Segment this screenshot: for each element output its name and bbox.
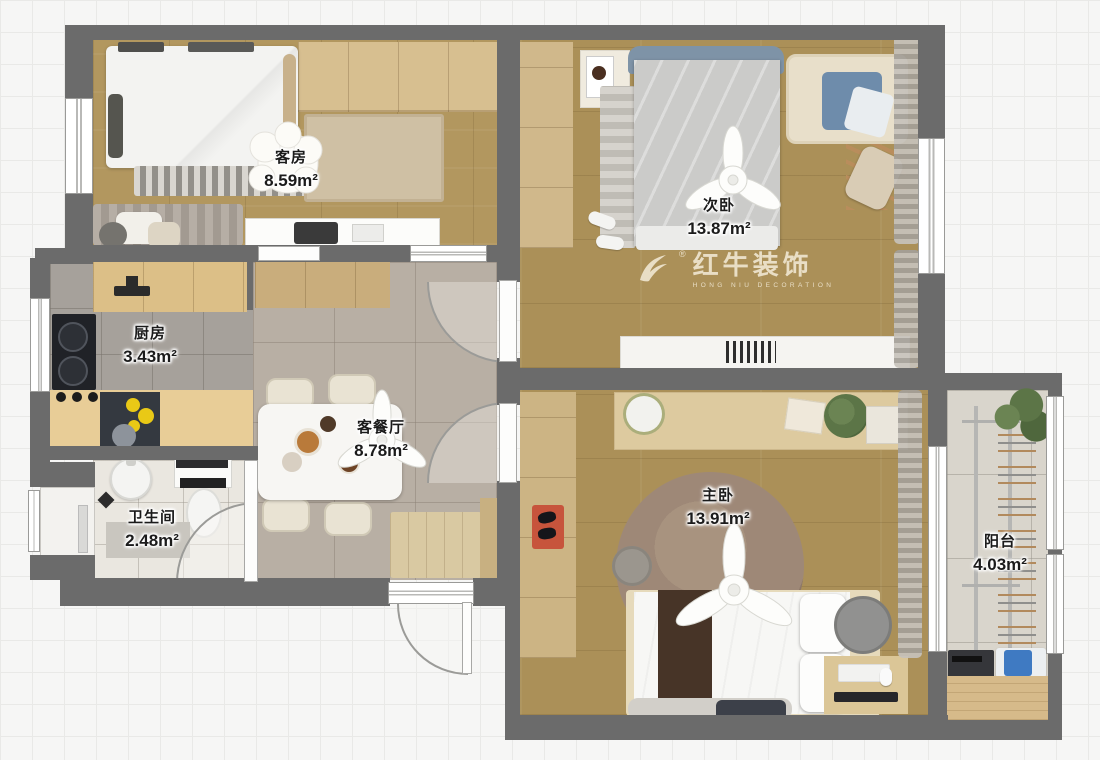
window-second-bedroom — [918, 138, 945, 274]
registered-mark: ® — [679, 250, 686, 259]
room-name: 阳台 — [973, 530, 1027, 551]
room-area: 3.43m² — [123, 347, 177, 367]
entry-door-frame — [388, 582, 474, 604]
window-kitchen-left — [30, 298, 50, 392]
room-label-living-dining: 客餐厅 8.78m² — [354, 416, 408, 461]
brand-name: 红牛装饰 — [693, 252, 835, 278]
room-label-kitchen: 厨房 3.43m² — [123, 322, 177, 367]
room-area: 13.91m² — [686, 509, 749, 529]
wall-kitchen-divider — [247, 262, 253, 310]
room-name: 客餐厅 — [354, 416, 408, 437]
window-hallway-transom — [410, 245, 487, 262]
window-balcony-right — [1046, 554, 1064, 654]
room-name: 客房 — [264, 146, 318, 167]
wall-center-vertical-mid — [497, 358, 520, 405]
door-second-bedroom — [499, 280, 517, 362]
watermark: ® 红牛装饰 HONG NIU DECORATION — [638, 252, 834, 289]
watermark-text: 红牛装饰 HONG NIU DECORATION — [693, 252, 835, 289]
wall-bedrooms-divider — [520, 368, 945, 390]
room-label-guest-room: 客房 8.59m² — [264, 146, 318, 191]
wall-right-upper — [918, 25, 945, 140]
wall-center-vertical-upper — [497, 25, 520, 282]
room-area: 4.03m² — [973, 555, 1027, 575]
room-name: 次卧 — [687, 194, 750, 215]
wall-right-mid — [918, 272, 945, 372]
door-bathroom — [244, 460, 258, 582]
balcony-plant — [988, 384, 1052, 444]
door-guest-room — [258, 246, 320, 261]
room-area: 13.87m² — [687, 219, 750, 239]
window-balcony-right — [1046, 396, 1064, 550]
wall-bay-bottom — [30, 555, 95, 580]
wall-bottom-left — [60, 578, 390, 606]
room-area: 8.78m² — [354, 441, 408, 461]
wall-master-balcony-lower — [928, 650, 947, 717]
room-name: 主卧 — [686, 484, 749, 505]
door-master-bedroom — [499, 403, 517, 483]
window-guest-left — [65, 98, 93, 194]
brand-subtitle: HONG NIU DECORATION — [693, 282, 835, 289]
wall-balcony-bottom — [945, 720, 1062, 740]
wall-kitchen-bathroom-divider — [35, 446, 258, 460]
room-area: 2.48m² — [125, 531, 179, 551]
window-master-balcony — [928, 446, 947, 652]
entry-door-leaf — [462, 602, 472, 674]
room-label-balcony: 阳台 4.03m² — [973, 530, 1027, 575]
room-name: 厨房 — [123, 322, 177, 343]
floor-plan: 客房 8.59m² 次卧 13.87m² 厨房 3.43m² 客餐厅 8.78m… — [0, 0, 1100, 760]
room-name: 卫生间 — [125, 506, 179, 527]
wall-bay-top — [30, 462, 95, 487]
window-bathroom-bay — [28, 490, 40, 552]
door-swing-entry — [398, 604, 468, 674]
door-swing-master-bedroom — [428, 403, 508, 483]
hongniu-bull-logo-icon — [638, 252, 672, 284]
ceiling-fan-master-bedroom — [671, 524, 796, 633]
room-area: 8.59m² — [264, 171, 318, 191]
wall-master-bottom — [505, 715, 948, 740]
wall-master-left — [505, 582, 520, 717]
room-label-second-bedroom: 次卧 13.87m² — [687, 194, 750, 239]
room-label-master-bedroom: 主卧 13.91m² — [686, 484, 749, 529]
wall-center-vertical-lower — [497, 481, 520, 582]
door-swing-second-bedroom — [428, 282, 508, 362]
room-label-bathroom: 卫生间 2.48m² — [125, 506, 179, 551]
wall-master-balcony-upper — [928, 390, 947, 448]
